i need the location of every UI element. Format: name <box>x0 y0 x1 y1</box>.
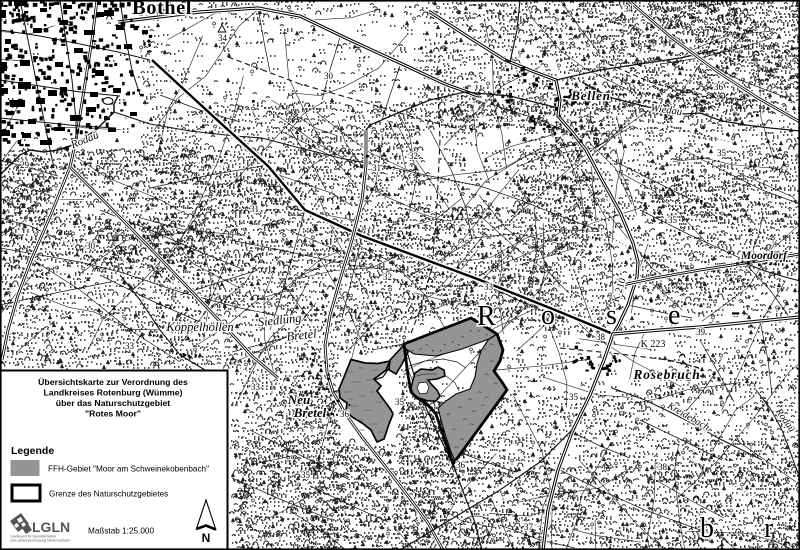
svg-text:Bothel: Bothel <box>132 0 192 19</box>
svg-text:35: 35 <box>717 148 727 158</box>
svg-text:34: 34 <box>624 4 634 14</box>
svg-text:32: 32 <box>383 272 392 282</box>
svg-text:35: 35 <box>301 470 311 480</box>
svg-text:30: 30 <box>324 71 334 81</box>
svg-text:"Rotes Moor": "Rotes Moor" <box>85 409 141 419</box>
svg-text:33: 33 <box>251 382 261 392</box>
svg-text:Übersichtskarte zur Verordnung: Übersichtskarte zur Verordnung des <box>38 377 188 387</box>
svg-text:Rosebruch: Rosebruch <box>632 367 700 382</box>
svg-text:29: 29 <box>20 160 30 170</box>
svg-text:39: 39 <box>696 327 706 337</box>
svg-text:34: 34 <box>218 33 228 43</box>
svg-text:-: - <box>731 296 740 327</box>
svg-text:32: 32 <box>409 151 418 161</box>
svg-text:36: 36 <box>340 409 350 419</box>
svg-text:35: 35 <box>668 215 678 225</box>
svg-text:Bellen: Bellen <box>570 88 610 103</box>
svg-text:36: 36 <box>456 460 466 470</box>
svg-text:38: 38 <box>596 332 606 342</box>
svg-text:31: 31 <box>250 204 259 214</box>
svg-text:r: r <box>764 513 774 544</box>
svg-text:s: s <box>606 300 617 331</box>
svg-text:LGLN: LGLN <box>32 519 70 535</box>
svg-text:33: 33 <box>484 282 494 292</box>
svg-text:über das Naturschutzgebiet: über das Naturschutzgebiet <box>56 398 171 408</box>
svg-text:31: 31 <box>372 163 381 173</box>
svg-text:R: R <box>477 301 496 332</box>
svg-text:Grenze des Naturschutzgebietes: Grenze des Naturschutzgebietes <box>49 490 168 499</box>
svg-text:K 223: K 223 <box>641 339 666 350</box>
svg-text:35: 35 <box>569 392 579 402</box>
svg-text:Landkreises Rotenburg (Wümme): Landkreises Rotenburg (Wümme) <box>43 388 182 398</box>
svg-text:36: 36 <box>714 82 724 92</box>
svg-text:Legende: Legende <box>11 445 54 457</box>
svg-text:33: 33 <box>125 341 135 351</box>
svg-text:Maßstab 1:25.000: Maßstab 1:25.000 <box>88 527 154 536</box>
svg-text:o: o <box>541 300 555 331</box>
svg-text:35: 35 <box>395 397 405 407</box>
svg-text:38: 38 <box>658 462 668 472</box>
svg-text:Moordorf: Moordorf <box>740 250 788 262</box>
svg-text:b: b <box>700 513 714 544</box>
svg-text:e: e <box>668 300 680 331</box>
svg-text:30: 30 <box>86 241 96 251</box>
svg-text:FFH-Gebiet "Moor am Schweineko: FFH-Gebiet "Moor am Schweinekobenbach" <box>48 465 209 474</box>
svg-text:Bretel: Bretel <box>293 405 327 420</box>
svg-text:und Landesvermessung Niedersac: und Landesvermessung Niedersachsen <box>10 539 70 543</box>
svg-text:37: 37 <box>524 522 534 532</box>
svg-text:N: N <box>202 531 211 545</box>
svg-text:Köppelhöllen: Köppelhöllen <box>165 320 233 334</box>
svg-text:33: 33 <box>504 114 514 124</box>
